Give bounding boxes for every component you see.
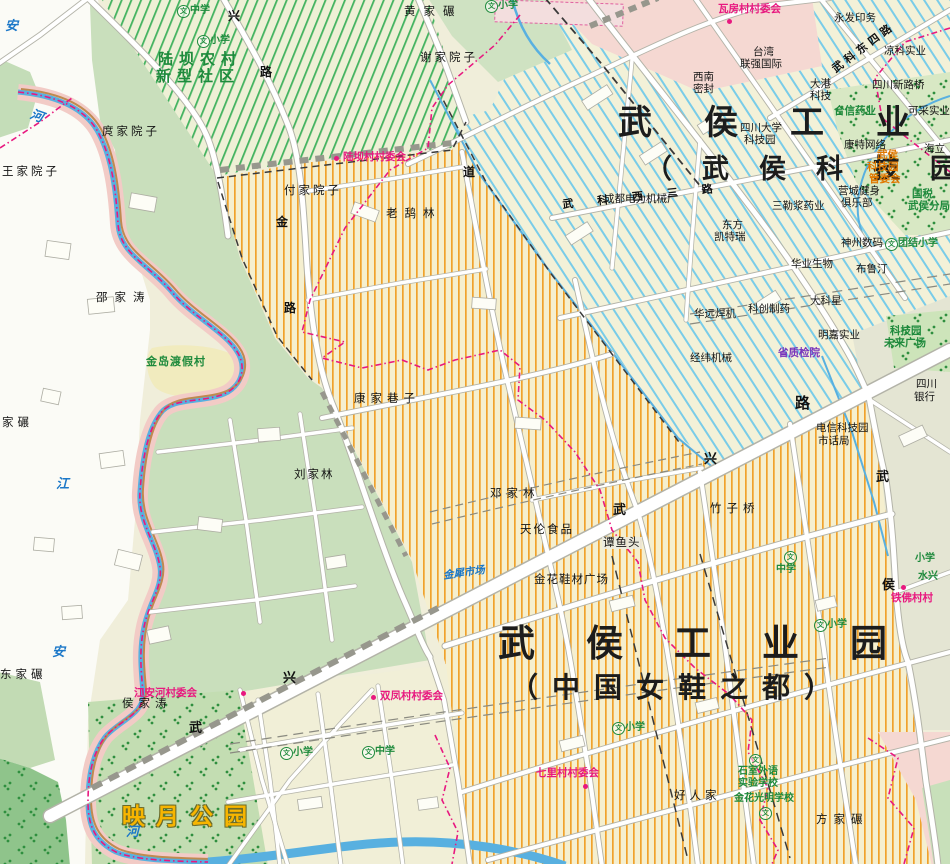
- place-label: 康家巷子: [354, 393, 420, 405]
- school-icon: 文: [612, 722, 625, 735]
- company-label: 三勒浆药业: [772, 201, 825, 212]
- school-label: 小学: [210, 36, 230, 46]
- place-label: 邵家涛: [96, 292, 152, 304]
- company-label: 科技园: [744, 135, 776, 146]
- zone-title-tech-industry: 武侯工业: [618, 106, 950, 140]
- committee-dot: [901, 585, 906, 590]
- school-icon: 文: [784, 551, 797, 564]
- school-icon: 文: [177, 5, 190, 18]
- place-label: 刘家林: [294, 469, 335, 481]
- company-label: 国税: [912, 189, 933, 200]
- zone-title-shoe-capital: （中国女鞋之都）: [510, 674, 846, 702]
- place-label: 金花鞋材广场: [534, 574, 609, 586]
- road-label: 路: [260, 66, 272, 78]
- committee-label: 瓦房村村委会: [718, 4, 781, 15]
- company-label: 武侯分局: [908, 201, 950, 212]
- school-icon: 文: [759, 807, 772, 820]
- mgmt-committee-label: 管委会: [869, 174, 901, 185]
- committee-label: 陆坝村村委会: [343, 152, 406, 163]
- place-label: 老鸹林: [386, 208, 442, 220]
- committee-dot: [334, 156, 339, 161]
- place-label: 谢家院子: [420, 52, 478, 64]
- company-label: 四川新路桥: [872, 80, 925, 91]
- committee-label: 七里村村委会: [536, 768, 599, 779]
- company-label: 市话局: [818, 436, 850, 447]
- school-label: 小学: [625, 723, 645, 733]
- committee-label: 铁佛村村: [891, 593, 933, 604]
- committee-dot: [371, 695, 376, 700]
- company-label: 联强国际: [740, 59, 782, 70]
- road-label: 侯: [882, 579, 895, 592]
- company-label: 西南: [693, 72, 714, 83]
- place-label: 金岛渡假村: [146, 356, 206, 367]
- place-label: 邓家林: [490, 488, 540, 500]
- road-label: 路: [795, 396, 810, 411]
- company-label: 未来广场: [884, 338, 926, 349]
- place-label: 家碾: [2, 417, 33, 429]
- school-icon: 文: [280, 747, 293, 760]
- committee-dot: [727, 19, 732, 24]
- school-label: 小学: [915, 554, 935, 564]
- company-label: 四川: [916, 379, 937, 390]
- company-label: 凯特瑞: [714, 232, 746, 243]
- mgmt-committee-label: 武侯: [877, 150, 898, 161]
- company-label: 俱乐部: [841, 198, 873, 209]
- company-label: 台湾: [753, 47, 774, 58]
- road-label: 武: [876, 471, 889, 484]
- place-label: 王家院子: [2, 166, 60, 178]
- committee-dot: [241, 691, 246, 696]
- community-title: 陆坝农村: [158, 52, 242, 67]
- company-label: 永发印务: [834, 13, 876, 24]
- place-label: 东家碾: [0, 669, 47, 681]
- mgmt-committee-label: 科技园: [867, 162, 899, 173]
- company-label: 科技园: [890, 326, 922, 337]
- company-label: 密封: [693, 84, 714, 95]
- committee-dot: [583, 784, 588, 789]
- road-label: 兴: [704, 453, 717, 466]
- place-label: 方家碾: [816, 814, 869, 826]
- company-label: 银行: [914, 392, 935, 403]
- zone-title-shoe-park: 武侯工业园: [498, 625, 938, 662]
- company-label: 华业生物: [791, 259, 833, 270]
- company-label: 四川大学: [740, 123, 782, 134]
- company-label: 营城健身: [838, 186, 880, 197]
- place-label: 谭鱼头: [602, 537, 642, 549]
- company-label: 合信药业: [834, 106, 876, 117]
- company-label: 布鲁汀: [856, 264, 888, 275]
- company-label: 经纬机械: [690, 353, 732, 364]
- road-label: 兴: [283, 672, 296, 685]
- company-label: 华远焊机: [694, 309, 736, 320]
- company-label: 可采实业: [908, 106, 950, 117]
- company-label: 大科星: [810, 296, 842, 307]
- road-label: 路: [284, 302, 296, 314]
- company-label: 大港: [810, 79, 831, 90]
- school-label: 中学: [776, 565, 796, 575]
- school-icon: 文: [814, 619, 827, 632]
- road-label: 兴: [228, 10, 240, 22]
- school-icon: 文: [485, 0, 498, 13]
- school-label: 小学: [498, 1, 518, 11]
- committee-label: 江安河村委会: [134, 688, 197, 699]
- school-label: 石室外语: [738, 767, 778, 777]
- school-label: 中学: [375, 747, 395, 757]
- company-label: 东方: [722, 220, 743, 231]
- school-icon: 文: [885, 238, 898, 251]
- place-label: 侯家涛: [122, 698, 172, 710]
- road-label: 武: [189, 722, 202, 735]
- map-viewport[interactable]: 武侯工业 （武侯科技园 武侯工业园 （中国女鞋之都） 映月公园 陆坝农村 新型社…: [0, 0, 950, 864]
- company-label: 海立: [924, 144, 945, 155]
- school-icon: 文: [197, 35, 210, 48]
- school-label: 小学: [293, 748, 313, 758]
- company-label: 省质检院: [778, 348, 820, 359]
- place-label: 水兴: [918, 572, 938, 582]
- school-label: 金花光明学校: [734, 794, 794, 804]
- place-label: 竹子桥: [710, 503, 760, 515]
- company-label: 电信科技园: [816, 423, 869, 434]
- school-label: 中学: [190, 6, 210, 16]
- company-label: 科技: [810, 91, 831, 102]
- company-label: 明嘉实业: [818, 330, 860, 341]
- place-label: 付家院子: [284, 185, 342, 197]
- place-label: 庹家院子: [102, 126, 160, 138]
- park-title-yingyue: 映月公园: [122, 806, 258, 829]
- school-label: 实验学校: [738, 779, 778, 789]
- zone-title-tech-park: （武侯科技园: [645, 156, 950, 183]
- school-label: 小学: [827, 620, 847, 630]
- company-label: 凉科实业: [884, 46, 926, 57]
- river-label: 安: [5, 20, 18, 33]
- company-label: 科创制药: [748, 304, 790, 315]
- road-label: 武: [613, 504, 626, 517]
- river-label: 河: [126, 826, 139, 839]
- road-label: 道: [463, 166, 475, 178]
- place-label: 黄家碾: [404, 6, 463, 18]
- company-label: 神州数码: [841, 238, 883, 249]
- school-icon: 文: [362, 746, 375, 759]
- river-label: 安: [52, 646, 65, 659]
- committee-label: 双凤村村委会: [380, 691, 443, 702]
- community-title: 新型社区: [156, 69, 240, 84]
- place-label: 天伦食品: [520, 524, 574, 536]
- road-label: 金: [276, 216, 288, 228]
- place-label: 好人家: [674, 790, 721, 802]
- river-label: 江: [56, 478, 69, 491]
- school-label: 团结小学: [898, 239, 938, 249]
